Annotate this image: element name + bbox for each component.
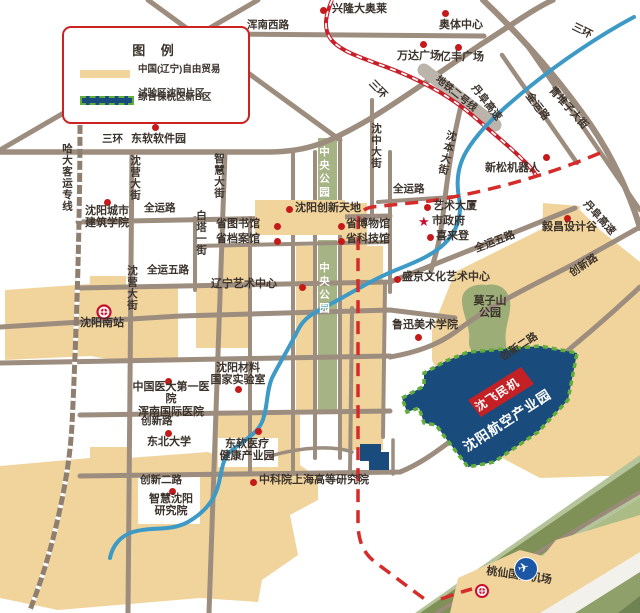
poi-dot	[338, 238, 345, 245]
poi-label-xinsong: 新松机器人	[485, 162, 540, 174]
poi-dot	[250, 479, 257, 486]
poi-dot	[152, 124, 159, 131]
poi-dot	[420, 41, 427, 48]
road-label-shenying-s: 沈营大街	[125, 265, 140, 311]
poi-dot	[394, 276, 401, 283]
poi-label-xinglong: 兴隆大奥莱	[332, 3, 387, 15]
ftz-swatch-icon	[80, 70, 130, 78]
legend-item-ftz-line1: 中国(辽宁)自由贸易	[138, 64, 220, 75]
road-label-shenying-n: 沈营大街	[128, 155, 143, 201]
station-label-south: 沈阳南站	[80, 317, 124, 329]
poi-label-bowuguan: 省博物馆	[346, 218, 390, 230]
poi-dot	[274, 238, 281, 245]
airport-icon: ✈	[514, 557, 538, 581]
road-label-chuangxin-w: 创新路	[141, 416, 173, 428]
poi-label-luxun: 鲁迅美术学院	[392, 319, 458, 331]
poi-label-yida: 中国医大第一医院 浑南国际医院	[128, 381, 214, 418]
road-label-quanyunwu-w: 全运五路	[147, 265, 189, 277]
poi-dot	[235, 386, 242, 393]
park-label-central-n: 中央公园	[317, 146, 332, 200]
poi-label-shengjing: 盛京文化艺术中心	[402, 271, 490, 283]
legend-title: 图 例	[64, 40, 248, 59]
road-label-hunnanxilu: 浑南西路	[247, 20, 289, 32]
poi-dot	[320, 7, 327, 14]
road-label-quanyun-w: 全运路	[144, 203, 176, 215]
poi-label-aoti: 奥体中心	[439, 19, 483, 31]
road-label-quanyun-e: 全运路	[393, 184, 425, 196]
poi-label-zhongkeyuan: 中科院上海高等研究院	[259, 474, 369, 486]
city-hall-star-icon: ★	[418, 215, 430, 228]
legend-item-bonded: 综合保税区新B区	[138, 92, 211, 104]
poi-label-xilaideng: 喜来登	[436, 230, 469, 242]
poi-label-yishudasha: 艺术大厦	[433, 200, 477, 212]
greenbelt	[415, 455, 640, 613]
poi-label-tiandi: 沈阳创新天地	[295, 202, 361, 214]
poi-label-dangan: 省档案馆	[216, 233, 260, 245]
poi-label-yichang: 毅昌设计谷	[542, 221, 597, 233]
poi-dot	[427, 234, 434, 241]
poi-dot	[286, 206, 293, 213]
poi-label-wanda: 万达广场	[397, 50, 441, 62]
poi-label-shizhengfu: 市政府	[432, 215, 465, 227]
poi-label-dongruan-yiliao: 东软医疗 健康产业园	[216, 438, 278, 463]
road-label-zhihuidajie: 智慧大街	[212, 153, 227, 199]
rail-label-hada: 哈大客运专线	[60, 143, 75, 212]
park-label-mozishan: 莫子山 公园	[462, 295, 518, 320]
bonded-zone-small	[360, 444, 389, 470]
airplane-glyph: ✈	[516, 559, 531, 577]
poi-dot	[338, 223, 345, 230]
poi-label-dongruan-software: 东软软件园	[131, 133, 186, 145]
poi-dot	[442, 10, 449, 17]
poi-dot	[424, 204, 431, 211]
poi-label-yifeng: 亿丰广场	[440, 51, 484, 63]
airport-station-icon	[476, 585, 488, 597]
bonded-zone-swatch-icon	[80, 96, 134, 105]
poi-label-dongbei: 东北大学	[147, 436, 191, 448]
poi-dot	[543, 154, 550, 161]
legend: 图 例 中国(辽宁)自由贸易 试验区沈阳片区 综合保税区新B区	[62, 26, 250, 124]
poi-dot	[455, 44, 462, 51]
park-label-central-s: 中央公园	[317, 262, 332, 316]
poi-dot	[299, 284, 306, 291]
poi-label-keji: 省科技馆	[346, 233, 390, 245]
poi-label-cailiao: 沈阳材料 国家实验室	[206, 362, 270, 387]
poi-label-liaoyi: 辽宁艺术中心	[211, 278, 277, 290]
road-label-baita: 白塔一街	[194, 210, 209, 256]
poi-dot	[274, 223, 281, 230]
shenyang-ftz-map: 图 例 中国(辽宁)自由贸易 试验区沈阳片区 综合保税区新B区 ★ 兴隆大奥莱 …	[0, 0, 640, 613]
poi-label-tushuguan: 省图书馆	[216, 218, 260, 230]
road-label-chuangxin2-w: 创新二路	[140, 475, 182, 487]
road-label-shenzhong: 沈中大街	[369, 123, 384, 169]
poi-label-zhihui-yanjiuyuan: 智慧沈阳 研究院	[146, 493, 196, 518]
poi-dot	[255, 428, 262, 435]
road-label-sanhuan-w: 三环	[102, 134, 123, 146]
poi-dot	[415, 334, 422, 341]
poi-label-chengshi: 沈阳城市 建筑学院	[83, 205, 131, 230]
